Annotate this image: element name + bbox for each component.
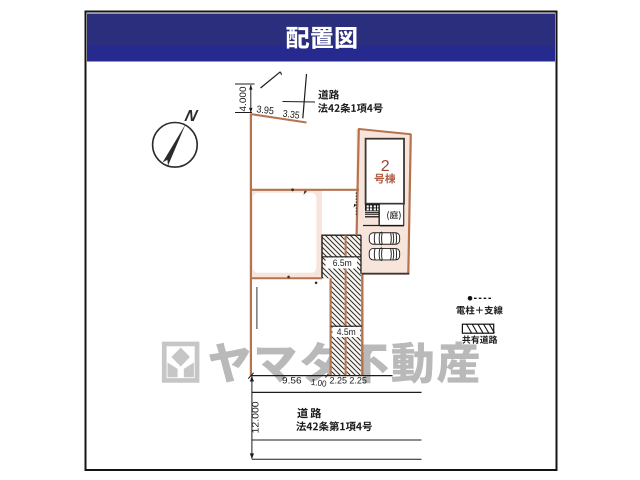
svg-text:4.5m: 4.5m — [337, 327, 356, 337]
svg-text:9.56: 9.56 — [282, 375, 302, 385]
svg-text:6.5m: 6.5m — [333, 258, 352, 268]
svg-text:2.25: 2.25 — [330, 375, 348, 385]
svg-text:12.000: 12.000 — [250, 401, 260, 433]
svg-text:2.25: 2.25 — [349, 375, 367, 385]
svg-text:2: 2 — [381, 158, 390, 175]
svg-text:4.000: 4.000 — [238, 86, 248, 111]
